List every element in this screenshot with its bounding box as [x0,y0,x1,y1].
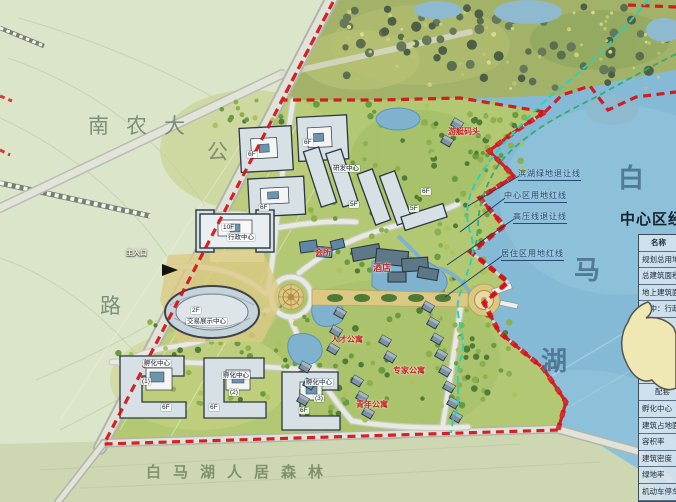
master-plan-map: 南农大 公 路 白马湖人居森林 白 马 湖 主入口 滨湖绿地退让线 中心区用地红… [0,0,676,502]
table-row: 建筑占地面积 [639,418,676,435]
incubator-label: 孵化中心 [143,360,171,367]
incubator-number: (1) [141,378,151,385]
floor-label: 6F [421,188,431,195]
floor-label: 2F [191,307,201,314]
youth-apartment-label: 青年公寓 [356,399,388,410]
hotel-label: 酒店 [373,261,391,274]
floor-label: 6F [299,407,309,414]
table-row: 容积率 [639,434,676,451]
exhibition-center-label: 交易展示中心 [186,318,227,325]
table-row: 孵化中心 [639,401,676,418]
incubator-number: (2) [229,389,239,396]
talent-apartment-label: 人才公寓 [331,334,363,345]
table-row: 地上建筑面积 [639,285,676,302]
floor-label: 10F [222,224,235,231]
lake-name-char-1: 白 [618,158,644,195]
floor-label: 6F [247,151,257,158]
floor-label: 5F [409,205,419,212]
incubator-label: 孵化中心 [222,372,250,379]
incubator-label: 孵化中心 [305,379,333,386]
legend-table-title: 中心区经济技术指标 [620,208,676,229]
floor-label: 5F [349,201,359,208]
setback-label-residential-redline: 居住区用地红线 [501,248,564,261]
table-row: 总建筑面积 [639,268,676,285]
rd-center-label: 研发中心 [332,165,360,172]
table-row: 建筑密度 [639,451,676,468]
expert-apartment-label: 专家公寓 [393,365,425,376]
incubator-number: (3) [314,395,324,402]
lake-island [618,300,676,392]
table-row: 绿地率 [639,467,676,484]
forest-band-label: 白马湖人居森林 [146,461,335,482]
floor-label: 6F [209,404,219,411]
table-row: 规划总用地 [639,252,676,269]
floor-label: 6F [303,139,313,146]
road-name-char-top: 公 [207,136,245,166]
table-row: 名称 [639,235,676,252]
lake-name-char-3: 湖 [541,341,567,378]
clubhouse-label: 会所 [315,247,331,258]
marina-label: 游艇码头 [448,126,480,137]
main-entrance-label: 主入口 [126,248,147,258]
lake-name-char-2: 马 [574,250,600,287]
table-row: 机动车停车位 [639,484,676,501]
setback-label-lakefront-green: 滨湖绿地退让线 [518,168,581,181]
campus-label: 南农大 [88,110,202,140]
admin-center-label: 行政中心 [227,234,255,241]
floor-label: 6F [161,404,171,411]
road-name-char-bottom: 路 [100,290,138,320]
floor-label: 6F [259,204,269,211]
setback-label-center-redline: 中心区用地红线 [504,190,567,203]
setback-label-hv-line: 高压线退让线 [513,211,567,224]
